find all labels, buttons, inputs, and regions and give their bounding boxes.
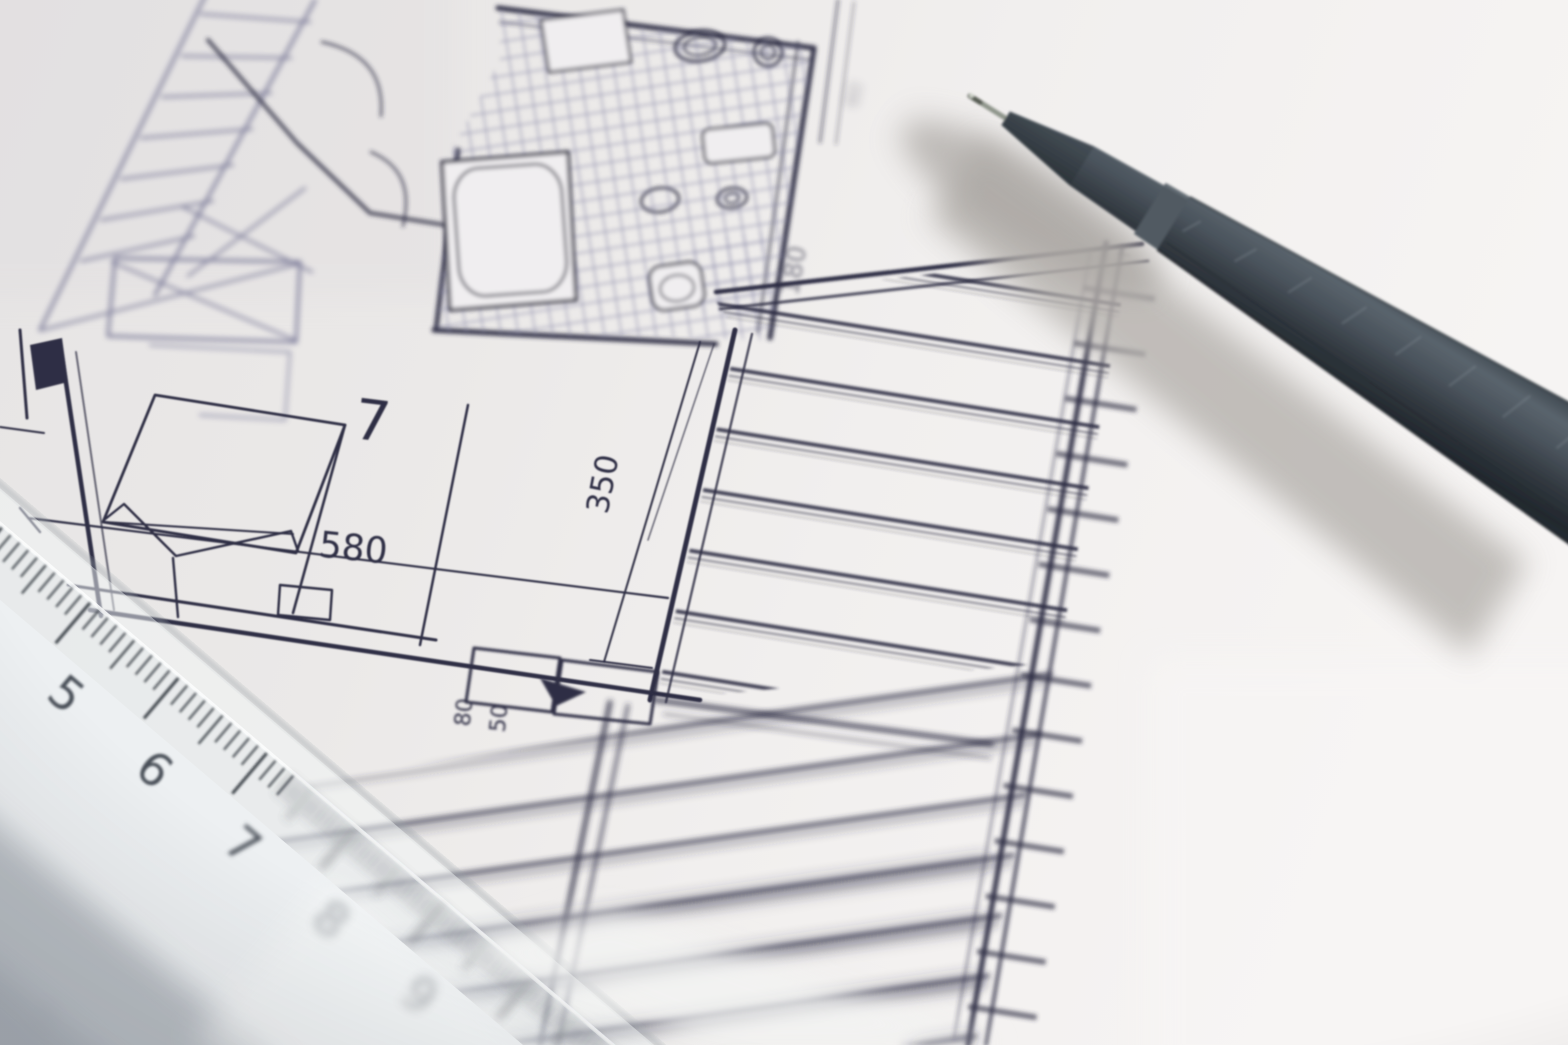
vignette-overlay xyxy=(0,0,1568,1045)
scene-canvas: 580 7 350 80 50 xyxy=(0,0,1568,1045)
blueprint-photo-scene: 580 7 350 80 50 xyxy=(0,0,1568,1045)
